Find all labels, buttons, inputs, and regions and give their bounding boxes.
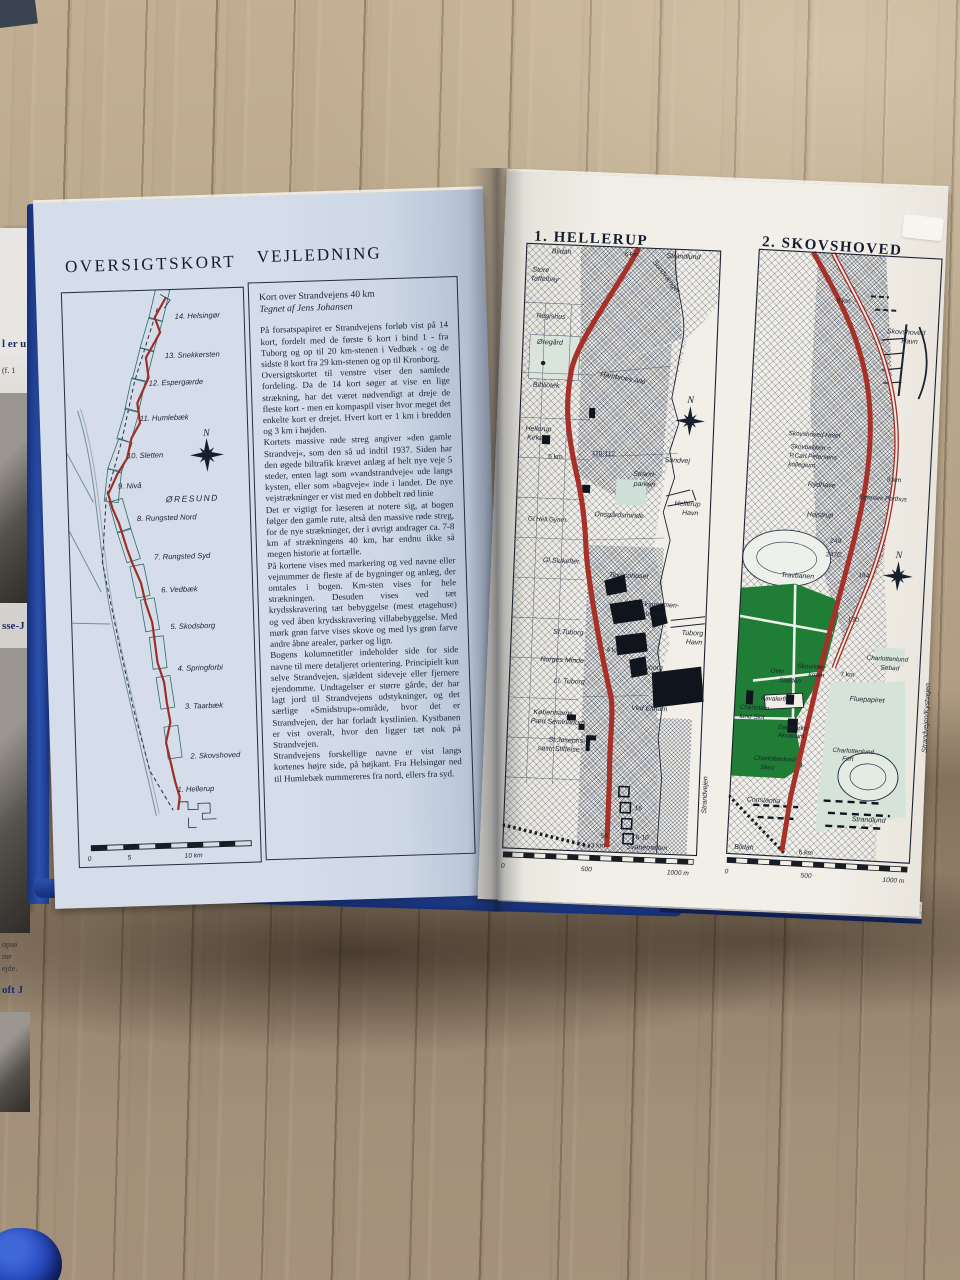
map-label: Højstrup <box>807 511 834 519</box>
map-label: Skovrider- <box>797 663 826 672</box>
white-sticker <box>902 214 944 241</box>
guide-paragraph: Det er vigtigt for læseren at notere sig… <box>266 499 456 561</box>
map-label: kollegium <box>788 461 816 469</box>
hellerup-map-frame: Blidah 6 km Strandlund Sundvænget Store … <box>500 242 737 887</box>
map-label: Over <box>770 667 785 675</box>
map-label: Søbad <box>880 664 900 672</box>
map-label: Bibliotek <box>533 382 560 390</box>
km-stone-label: 3 km <box>590 842 605 850</box>
overview-map: 14. Helsingør 13. Snekkersten 12. Esperg… <box>62 288 259 865</box>
hellerup-map: Blidah 6 km Strandlund Sundvænget Store … <box>501 242 738 882</box>
map-label: Havn <box>901 338 918 346</box>
map-label: Taffelbay <box>530 275 559 283</box>
map-label: Tuborg <box>641 664 663 672</box>
map-label: Rydhave <box>808 481 836 489</box>
house-number-label: 247C <box>826 551 842 559</box>
map-label: tarium <box>645 610 665 618</box>
compass: N <box>882 549 914 592</box>
skovshoved-map: 9 km Skovshoved Havn Skovshoved Hotel Sk… <box>724 248 960 892</box>
guide-paragraph: Kortets massive røde streg angiver »den … <box>263 432 453 505</box>
station-label: 4. Springforbi <box>178 663 224 673</box>
map-label: Skov <box>760 764 775 772</box>
map-label: Fort <box>842 755 854 763</box>
station-label: 14. Helsingør <box>175 310 221 320</box>
map-label: Tuborg <box>681 630 703 638</box>
station-labels: 14. Helsingør 13. Snekkersten 12. Esperg… <box>113 310 243 795</box>
tuborg-harbor-pier <box>671 615 705 628</box>
scale-tick: 0 <box>88 856 92 863</box>
km-stone-label: 4 km <box>606 647 621 655</box>
station-label: 2. Skovshoved <box>189 750 241 761</box>
map-label: Blidah <box>552 248 572 256</box>
house-number-label: 59 <box>600 833 608 840</box>
house-number-label: 249 <box>830 538 842 546</box>
map-label: St.Josephs- <box>548 737 586 746</box>
skovshoved-map-frame: 9 km Skovshoved Havn Skovshoved Hotel Sk… <box>724 248 960 897</box>
scale-tick: 1000 m <box>882 877 905 885</box>
map-label: Hellerup <box>674 500 700 508</box>
map-label: kroen <box>808 672 825 680</box>
map-label: Gl.Slukefter <box>543 557 580 565</box>
scale-bar: 0 500 1000 m <box>501 852 694 878</box>
map-label: Havn <box>686 639 703 647</box>
scale-bar: 0 5 10 km <box>87 841 251 863</box>
station-label: 1. Hellerup <box>177 784 214 794</box>
side-road-label: Strandvejen/Kystvejen <box>921 683 932 753</box>
km-stone-label: 5 km <box>548 453 563 461</box>
house-number-label: 16 <box>635 805 643 812</box>
compass: N <box>674 394 706 436</box>
dense-area-hatch <box>582 545 664 718</box>
map-label: Blidah <box>734 844 754 852</box>
side-road-label: Strandvejen <box>701 776 709 814</box>
scale-tick: 5 <box>128 854 132 861</box>
station-label: 11. Humlebæk <box>140 412 190 423</box>
guide-paragraph: På kortene vises med markering og ved na… <box>267 555 458 650</box>
map-label: Hellerup <box>525 425 551 433</box>
house-number-label: 184 <box>858 572 870 580</box>
map-label: Stalden <box>779 677 801 685</box>
km-stone-label: 6 km <box>798 849 813 857</box>
scale-tick: 10 km <box>185 852 204 860</box>
right-page: 1. HELLERUP 2. SKOVSHOVED <box>478 171 949 916</box>
guide-title: VEJLEDNING <box>257 244 382 268</box>
compass-n-label: N <box>686 395 695 406</box>
scale-tick: 500 <box>581 866 593 873</box>
map-label: Ll. Tuborg <box>554 678 585 686</box>
map-label: Akvarium <box>777 732 806 741</box>
guide-paragraph: Strandvejens forskellige navne er vist l… <box>273 745 462 784</box>
station-label: 12. Espergærde <box>149 377 204 388</box>
oresund-label: ØRESUND <box>165 493 219 505</box>
station-label: 10. Sletten <box>127 450 164 460</box>
overview-map-title: OVERSIGTSKORT <box>65 252 237 277</box>
km-stone-label: 9 km <box>836 297 851 305</box>
station-label: 13. Snekkersten <box>165 349 220 360</box>
left-page: OVERSIGTSKORT VEJLEDNING <box>33 189 505 909</box>
km-stone-label: 8 km <box>887 476 902 484</box>
map-label: lund Slot <box>739 713 764 721</box>
compass: N <box>189 427 224 472</box>
map-label: Skovshoved <box>887 328 927 337</box>
inland-roads <box>66 407 160 818</box>
scale-tick: 500 <box>800 872 812 880</box>
station-label: 7. Rungsted Syd <box>154 551 211 562</box>
map-label: Sundvej <box>665 457 691 465</box>
scale-tick: 0 <box>724 868 728 875</box>
map-label: Strandlund <box>666 253 701 261</box>
open-book: OVERSIGTSKORT VEJLEDNING <box>0 0 960 1280</box>
compass-n-label: N <box>202 428 211 439</box>
map-label: Ved Eltham <box>631 705 667 713</box>
house-number-label: 110-112 <box>592 450 616 458</box>
map-label: Regishus <box>536 313 566 321</box>
compass-n-label: N <box>894 550 904 561</box>
scale-tick: 1000 m <box>667 869 690 877</box>
guide-text-frame: Kort over Strandvejens 40 km Tegnet af J… <box>248 276 476 860</box>
scale-tick: 0 <box>501 863 505 870</box>
map-label: parken <box>632 481 655 489</box>
station-label: 3. Taarbæk <box>185 700 225 710</box>
guide-paragraph: Oversigtskortet til venstre viser den sa… <box>261 364 451 437</box>
house-number-label: 8-10 <box>635 834 649 842</box>
photo-open-map-book: l er u (f. 1 sse-J opsø me ejde. oft J O… <box>0 0 960 1280</box>
house-number-label: 170 <box>848 617 860 625</box>
station-label: 6. Vedbæk <box>161 584 199 594</box>
station-label: 9. Nivå <box>118 481 142 491</box>
map-label: Store <box>532 267 549 275</box>
km-stone-label: 7 km <box>840 671 855 679</box>
map-label: Kirke <box>527 434 543 442</box>
map-label: Strand- <box>633 471 657 479</box>
guide-paragraph: På forsatspapiret er Strandvejens forløb… <box>260 320 449 371</box>
map-label: Havn <box>682 510 699 518</box>
station-label: 8. Rungsted Nord <box>137 512 198 523</box>
overview-map-frame: 14. Helsingør 13. Snekkersten 12. Esperg… <box>61 287 262 868</box>
map-label: St.Tuborg <box>553 629 584 637</box>
station-label: 5. Skodsborg <box>170 621 216 631</box>
guide-paragraph: Bogens kolumnetitler indeholder side for… <box>270 644 461 751</box>
map-label: Øregård <box>536 338 564 347</box>
km-stone-label: 6 km <box>624 251 639 259</box>
copenhagen-harbor <box>180 801 217 828</box>
